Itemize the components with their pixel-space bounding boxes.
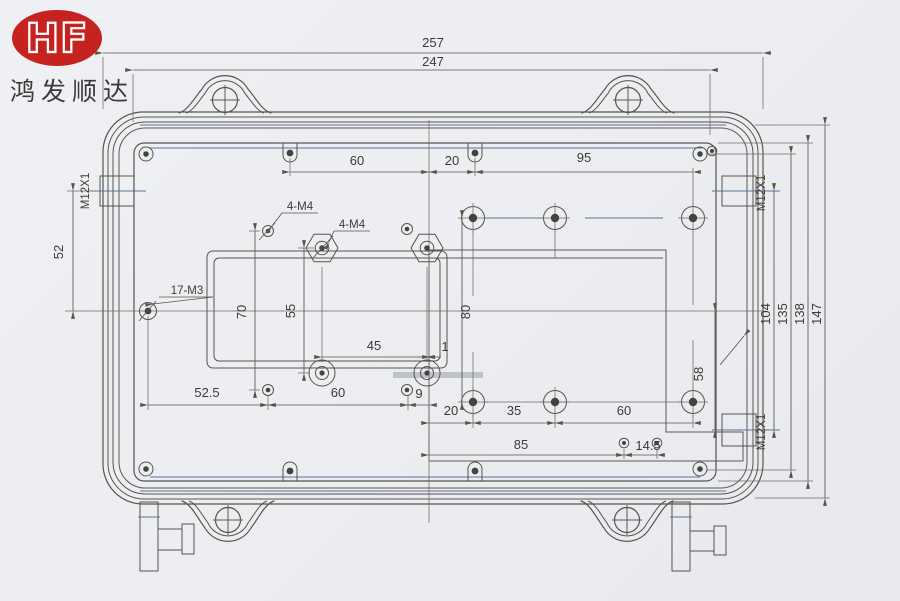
dim-lower-35: 35 [507, 403, 521, 418]
dim-135: 135 [775, 303, 790, 325]
enclosure-outlines [103, 76, 763, 542]
dim-bottom-60: 60 [331, 385, 345, 400]
logo-trademark: ™ [95, 15, 104, 25]
pocket-slot-shadow [393, 372, 483, 378]
enclosure-outer-wall [103, 112, 763, 504]
dim-9: 9 [415, 386, 422, 401]
dim-top-95: 95 [577, 150, 591, 165]
label-gland-right-bottom: M12X1 [756, 414, 768, 450]
dim-top-60: 60 [350, 153, 364, 168]
technical-drawing-canvas: 257 247 60 20 95 52 70 55 80 45 1 52.5 6… [0, 0, 900, 601]
dim-52-5: 52.5 [194, 385, 219, 400]
dimension-texts: 257 247 60 20 95 52 70 55 80 45 1 52.5 6… [51, 35, 824, 453]
dim-lower-20: 20 [444, 403, 458, 418]
dim-55: 55 [283, 304, 298, 318]
latch-left [138, 502, 194, 571]
label-gland-right-top: M12X1 [756, 175, 768, 211]
label-17-m3: 17-M3 [171, 285, 204, 297]
latch-right-screw-stem [690, 531, 714, 551]
latch-left-screw-stem [158, 529, 182, 550]
interior-features [207, 250, 743, 461]
drawing-sheet: 257 247 60 20 95 52 70 55 80 45 1 52.5 6… [0, 0, 900, 601]
brand-logo: HF ™ 鸿发顺达 [10, 10, 134, 106]
company-name: 鸿发顺达 [10, 77, 134, 106]
dim-45: 45 [367, 338, 381, 353]
dim-1: 1 [441, 339, 448, 354]
dim-70: 70 [234, 305, 249, 319]
wall-leader-arrow [720, 336, 744, 365]
dimension-lines [73, 53, 825, 498]
recessed-pocket [429, 250, 743, 461]
dim-52: 52 [51, 245, 66, 259]
mounting-plate [134, 143, 716, 481]
latch-right [670, 502, 726, 571]
plate-slot-holes [283, 143, 482, 481]
dim-overall-width: 257 [422, 35, 444, 50]
dim-80: 80 [458, 305, 473, 319]
dim-14-5: 14.5 [635, 438, 660, 453]
dim-138: 138 [792, 303, 807, 325]
logo-text: HF [26, 16, 89, 62]
latch-left-screw-cap [182, 524, 194, 554]
dim-58: 58 [691, 367, 706, 381]
dim-104: 104 [758, 303, 773, 325]
label-gland-left: M12X1 [80, 173, 92, 209]
label-4-m4-a: 4-M4 [287, 201, 314, 213]
dim-85: 85 [514, 437, 528, 452]
label-4-m4-b: 4-M4 [339, 219, 366, 231]
latch-right-screw-cap [714, 526, 726, 555]
dim-147: 147 [809, 303, 824, 325]
dim-top-20: 20 [445, 153, 459, 168]
dim-lower-60: 60 [617, 403, 631, 418]
enclosure-flange-line [119, 128, 747, 488]
m3-hole-rows [139, 203, 708, 417]
dim-lid-width: 247 [422, 54, 444, 69]
